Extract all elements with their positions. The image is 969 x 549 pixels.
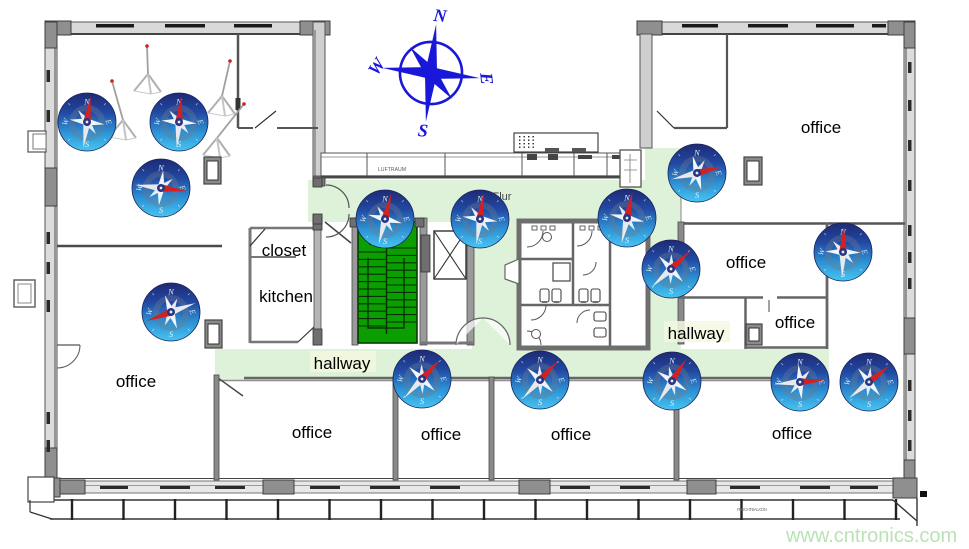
svg-text:FLUCHTBALKON: FLUCHTBALKON: [737, 507, 767, 512]
svg-text:office: office: [421, 425, 461, 444]
svg-text:kitchen: kitchen: [259, 287, 313, 306]
svg-text:hallway: hallway: [314, 354, 371, 373]
svg-text:LUFTRAUM: LUFTRAUM: [378, 167, 406, 173]
svg-text:www.cntronics.com: www.cntronics.com: [785, 525, 957, 547]
svg-text:office: office: [726, 253, 766, 272]
svg-text:E: E: [476, 71, 497, 86]
svg-text:office: office: [551, 425, 591, 444]
svg-text:office: office: [772, 424, 812, 443]
svg-text:closet: closet: [262, 241, 307, 260]
svg-text:office: office: [292, 423, 332, 442]
svg-text:hallway: hallway: [668, 324, 725, 343]
svg-text:office: office: [775, 313, 815, 332]
svg-text:office: office: [801, 118, 841, 137]
svg-text:office: office: [116, 372, 156, 391]
svg-text:S: S: [417, 120, 429, 141]
